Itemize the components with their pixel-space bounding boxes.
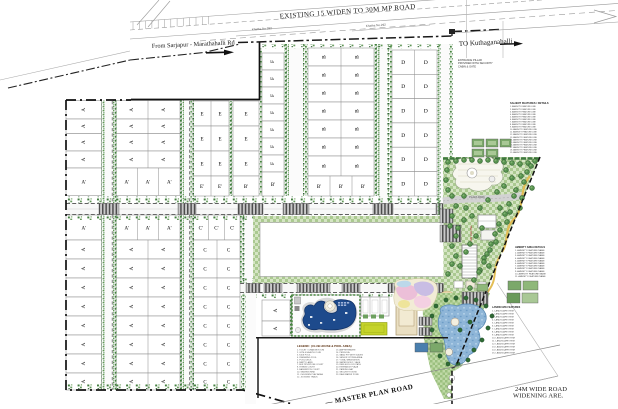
svg-text:A': A' bbox=[82, 226, 87, 231]
svg-text:E: E bbox=[200, 162, 203, 167]
svg-text:D: D bbox=[424, 109, 428, 115]
svg-text:B: B bbox=[322, 91, 328, 95]
svg-text:9. AMENITY FEATURE NAME: 9. AMENITY FEATURE NAME bbox=[515, 270, 545, 273]
svg-text:C': C' bbox=[199, 226, 203, 231]
svg-text:A: A bbox=[129, 323, 135, 327]
svg-text:A: A bbox=[81, 323, 87, 327]
svg-text:B: B bbox=[322, 73, 328, 77]
svg-text:11. LANDSCAPE ITEM: 11. LANDSCAPE ITEM bbox=[492, 339, 515, 342]
svg-text:A: A bbox=[81, 140, 87, 144]
svg-text:D: D bbox=[424, 60, 428, 66]
svg-text:A: A bbox=[161, 247, 167, 251]
svg-text:F: F bbox=[271, 60, 276, 63]
svg-text:A: A bbox=[161, 157, 167, 161]
svg-text:B': B' bbox=[339, 185, 343, 190]
svg-text:F: F bbox=[271, 128, 276, 131]
svg-text:1. AMENITY FEATURE NAME: 1. AMENITY FEATURE NAME bbox=[515, 249, 545, 252]
svg-text:B': B' bbox=[317, 185, 321, 190]
svg-text:A: A bbox=[81, 124, 87, 128]
svg-text:B: B bbox=[355, 73, 361, 77]
svg-text:17. AMENITY FEATURE LINE: 17. AMENITY FEATURE LINE bbox=[510, 146, 537, 149]
svg-text:3. LANDSCAPE ITEM: 3. LANDSCAPE ITEM bbox=[492, 315, 514, 318]
svg-text:E: E bbox=[244, 162, 247, 167]
svg-text:A: A bbox=[129, 304, 135, 308]
svg-text:A: A bbox=[81, 304, 87, 308]
svg-text:F: F bbox=[271, 94, 276, 97]
svg-text:E': E' bbox=[200, 185, 204, 190]
svg-text:14. AMENITY FEATURE LINE: 14. AMENITY FEATURE LINE bbox=[510, 138, 537, 141]
svg-text:B: B bbox=[355, 145, 361, 149]
svg-text:A: A bbox=[161, 379, 167, 383]
svg-text:E: E bbox=[200, 112, 203, 117]
svg-text:AMENITY AREA DETAILS: AMENITY AREA DETAILS bbox=[515, 246, 545, 249]
svg-text:A: A bbox=[161, 124, 167, 128]
svg-text:F: F bbox=[271, 111, 276, 114]
svg-text:D: D bbox=[424, 182, 428, 188]
svg-text:E: E bbox=[218, 137, 221, 142]
svg-text:LANDSCAPE FEATURES: LANDSCAPE FEATURES bbox=[492, 306, 521, 309]
svg-text:5. LANDSCAPE ITEM: 5. LANDSCAPE ITEM bbox=[492, 321, 514, 324]
svg-text:B: B bbox=[355, 91, 361, 95]
svg-text:A': A' bbox=[167, 181, 172, 186]
svg-text:A: A bbox=[129, 247, 135, 251]
svg-text:2. LANDSCAPE ITEM: 2. LANDSCAPE ITEM bbox=[492, 312, 514, 315]
svg-text:C': C' bbox=[214, 226, 218, 231]
svg-text:5. AMENITY FEATURE NAME: 5. AMENITY FEATURE NAME bbox=[515, 259, 545, 262]
svg-text:5. AMENITY FEATURE LINE: 5. AMENITY FEATURE LINE bbox=[510, 115, 536, 118]
svg-text:B: B bbox=[322, 109, 328, 113]
svg-text:14. LANDSCAPE ITEM: 14. LANDSCAPE ITEM bbox=[492, 348, 515, 351]
svg-text:B: B bbox=[355, 164, 361, 168]
svg-text:12. AMENITY FEATURE LINE: 12. AMENITY FEATURE LINE bbox=[510, 133, 537, 136]
svg-text:SALIENT FEATURES / DETAILS: SALIENT FEATURES / DETAILS bbox=[510, 101, 549, 105]
svg-text:A: A bbox=[161, 108, 167, 112]
svg-text:10. LANDSCAPE ITEM: 10. LANDSCAPE ITEM bbox=[492, 336, 515, 339]
svg-text:E: E bbox=[244, 137, 247, 142]
svg-text:2. AMENITY FEATURE NAME: 2. AMENITY FEATURE NAME bbox=[515, 252, 545, 255]
svg-text:A: A bbox=[129, 266, 135, 270]
svg-text:8. AMENITY FEATURE NAME: 8. AMENITY FEATURE NAME bbox=[515, 267, 545, 270]
svg-text:E: E bbox=[218, 162, 221, 167]
svg-text:D: D bbox=[401, 157, 405, 163]
svg-text:A: A bbox=[161, 342, 167, 346]
svg-text:B': B' bbox=[244, 185, 248, 190]
svg-text:A: A bbox=[129, 285, 135, 289]
svg-text:A: A bbox=[129, 379, 135, 383]
svg-text:3. AMENITY FEATURE NAME: 3. AMENITY FEATURE NAME bbox=[515, 254, 545, 257]
svg-text:B': B' bbox=[361, 185, 365, 190]
svg-text:A: A bbox=[161, 140, 167, 144]
svg-text:6. LANDSCAPE ITEM: 6. LANDSCAPE ITEM bbox=[492, 324, 514, 327]
svg-text:D: D bbox=[401, 109, 405, 115]
svg-text:PLAZA PARK: PLAZA PARK bbox=[469, 195, 485, 199]
svg-text:A: A bbox=[81, 361, 87, 365]
svg-text:A': A' bbox=[146, 181, 151, 186]
svg-text:A: A bbox=[161, 304, 167, 308]
svg-text:A: A bbox=[81, 247, 87, 251]
svg-text:4. AMENITY FEATURE NAME: 4. AMENITY FEATURE NAME bbox=[515, 257, 545, 260]
svg-text:A: A bbox=[81, 342, 87, 346]
svg-text:B: B bbox=[355, 55, 361, 59]
svg-text:16. AMENITY FEATURE LINE: 16. AMENITY FEATURE LINE bbox=[510, 143, 537, 146]
svg-text:A': A' bbox=[124, 181, 129, 186]
svg-text:12. LANDSCAPE ITEM: 12. LANDSCAPE ITEM bbox=[492, 342, 515, 345]
svg-text:3. AMENITY FEATURE LINE: 3. AMENITY FEATURE LINE bbox=[510, 110, 536, 113]
svg-text:A: A bbox=[161, 361, 167, 365]
svg-text:A': A' bbox=[146, 226, 151, 231]
svg-text:7. AMENITY FEATURE NAME: 7. AMENITY FEATURE NAME bbox=[515, 265, 545, 268]
svg-text:A: A bbox=[81, 157, 87, 161]
svg-text:B': B' bbox=[271, 183, 275, 188]
svg-text:A: A bbox=[129, 342, 135, 346]
svg-text:B: B bbox=[322, 145, 328, 149]
svg-text:1. AMENITY FEATURE LINE: 1. AMENITY FEATURE LINE bbox=[510, 105, 536, 108]
svg-text:23. RAIN WATER POND: 23. RAIN WATER POND bbox=[336, 373, 359, 376]
svg-text:B: B bbox=[355, 109, 361, 113]
svg-text:8. AMENITY FEATURE LINE: 8. AMENITY FEATURE LINE bbox=[510, 123, 536, 126]
svg-text:D: D bbox=[401, 182, 405, 188]
svg-text:10. AMENITY FEATURE NAME: 10. AMENITY FEATURE NAME bbox=[515, 272, 546, 275]
svg-text:D: D bbox=[401, 133, 405, 139]
svg-text:19. AMENITY FEATURE LINE: 19. AMENITY FEATURE LINE bbox=[510, 151, 537, 154]
svg-text:A: A bbox=[273, 308, 279, 312]
svg-text:B: B bbox=[355, 127, 361, 131]
svg-text:LEGEND : (CLUB HOUSE & POOL AR: LEGEND : (CLUB HOUSE & POOL AREA) bbox=[297, 344, 352, 348]
svg-text:CABIN & GATE: CABIN & GATE bbox=[458, 64, 476, 68]
svg-text:C': C' bbox=[230, 226, 234, 231]
svg-text:B: B bbox=[322, 164, 328, 168]
svg-text:D: D bbox=[424, 133, 428, 139]
svg-text:A: A bbox=[81, 266, 87, 270]
svg-text:A: A bbox=[161, 323, 167, 327]
svg-text:E: E bbox=[244, 112, 247, 117]
svg-text:B: B bbox=[322, 55, 328, 59]
svg-text:A: A bbox=[81, 379, 87, 383]
svg-text:F: F bbox=[271, 145, 276, 148]
svg-text:13. LANDSCAPE ITEM: 13. LANDSCAPE ITEM bbox=[492, 345, 515, 348]
svg-text:E': E' bbox=[218, 185, 222, 190]
svg-text:8. LANDSCAPE ITEM: 8. LANDSCAPE ITEM bbox=[492, 330, 514, 333]
svg-text:D: D bbox=[401, 84, 405, 90]
svg-text:E: E bbox=[200, 137, 203, 142]
svg-text:A: A bbox=[129, 108, 135, 112]
svg-text:9. LANDSCAPE ITEM: 9. LANDSCAPE ITEM bbox=[492, 333, 514, 336]
svg-text:A: A bbox=[81, 108, 87, 112]
svg-text:6. AMENITY FEATURE NAME: 6. AMENITY FEATURE NAME bbox=[515, 262, 545, 265]
svg-text:B: B bbox=[322, 127, 328, 131]
svg-text:A': A' bbox=[124, 226, 129, 231]
svg-text:A: A bbox=[129, 157, 135, 161]
svg-text:4. LANDSCAPE ITEM: 4. LANDSCAPE ITEM bbox=[492, 318, 514, 321]
svg-text:A: A bbox=[129, 361, 135, 365]
svg-text:F: F bbox=[271, 77, 276, 80]
svg-text:D: D bbox=[424, 157, 428, 163]
svg-text:15. LANDSCAPE ITEM: 15. LANDSCAPE ITEM bbox=[492, 351, 515, 354]
svg-text:11. AMENITY FEATURE NAME: 11. AMENITY FEATURE NAME bbox=[515, 275, 546, 278]
svg-text:1. LANDSCAPE ITEM: 1. LANDSCAPE ITEM bbox=[492, 309, 514, 312]
svg-text:A: A bbox=[161, 266, 167, 270]
svg-text:A: A bbox=[129, 124, 135, 128]
svg-text:D: D bbox=[401, 60, 405, 66]
svg-text:A: A bbox=[273, 326, 279, 330]
svg-text:E: E bbox=[218, 112, 221, 117]
svg-text:12. JOGGING TRACK: 12. JOGGING TRACK bbox=[297, 375, 318, 378]
svg-text:F: F bbox=[271, 162, 276, 165]
svg-text:9. AMENITY FEATURE LINE: 9. AMENITY FEATURE LINE bbox=[510, 126, 536, 129]
svg-text:WIDENING ARE.: WIDENING ARE. bbox=[513, 393, 564, 400]
svg-text:A: A bbox=[161, 285, 167, 289]
svg-text:A': A' bbox=[82, 181, 87, 186]
svg-text:A: A bbox=[81, 285, 87, 289]
svg-text:A': A' bbox=[167, 226, 172, 231]
svg-text:D: D bbox=[424, 84, 428, 90]
svg-text:7. LANDSCAPE ITEM: 7. LANDSCAPE ITEM bbox=[492, 327, 514, 330]
svg-text:A: A bbox=[129, 140, 135, 144]
